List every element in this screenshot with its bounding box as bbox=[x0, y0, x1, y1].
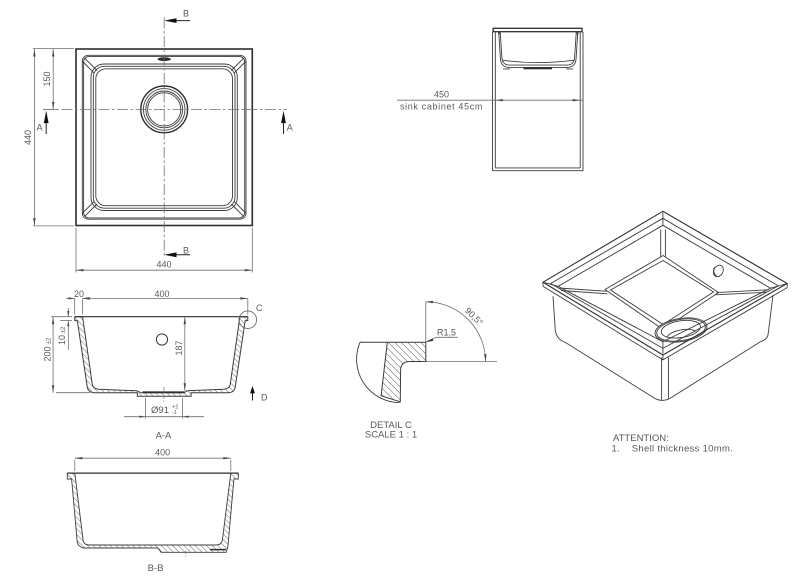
svg-text:B-B: B-B bbox=[148, 563, 164, 574]
svg-text:150: 150 bbox=[42, 71, 52, 86]
svg-text:400: 400 bbox=[154, 289, 169, 299]
svg-text:C: C bbox=[256, 303, 263, 313]
svg-text:R1,5: R1,5 bbox=[437, 328, 456, 338]
svg-text:A: A bbox=[287, 123, 293, 133]
svg-text:D: D bbox=[261, 393, 268, 403]
svg-text:450: 450 bbox=[434, 90, 449, 100]
svg-text:sink cabinet 45cm: sink cabinet 45cm bbox=[400, 102, 483, 112]
svg-text:B: B bbox=[183, 8, 189, 18]
svg-text:1. Shell thickness 10mm.: 1. Shell thickness 10mm. bbox=[612, 444, 734, 455]
svg-text:A-A: A-A bbox=[155, 431, 172, 442]
svg-text:B: B bbox=[183, 246, 189, 256]
svg-text:-1: -1 bbox=[172, 410, 177, 416]
svg-text:±2: ±2 bbox=[47, 337, 53, 344]
svg-text:200: 200 bbox=[43, 346, 53, 361]
svg-text:440: 440 bbox=[156, 260, 171, 270]
svg-text:187: 187 bbox=[174, 340, 184, 355]
svg-text:440: 440 bbox=[23, 130, 33, 145]
svg-text:ATTENTION:: ATTENTION: bbox=[613, 433, 669, 444]
svg-text:A: A bbox=[37, 123, 43, 133]
svg-text:SCALE 1 : 1: SCALE 1 : 1 bbox=[365, 430, 417, 441]
svg-text:±2: ±2 bbox=[61, 326, 67, 333]
svg-text:20: 20 bbox=[74, 289, 84, 299]
svg-text:10: 10 bbox=[57, 335, 67, 345]
svg-text:Ø91: Ø91 bbox=[151, 405, 169, 416]
svg-text:400: 400 bbox=[155, 448, 170, 458]
